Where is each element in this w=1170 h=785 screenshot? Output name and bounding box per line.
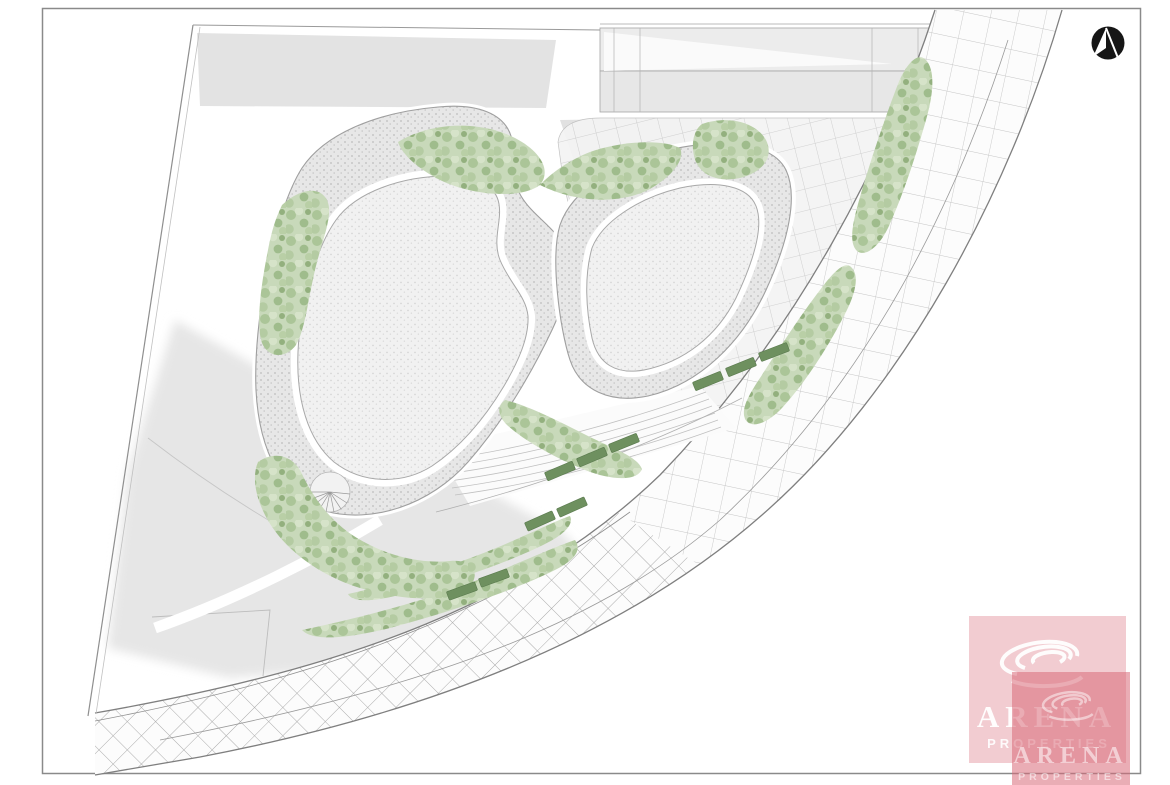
site-plan-drawing: ARENA PROPERTIES ARENA PROPERTIES [0, 0, 1170, 785]
watermark-small: ARENA PROPERTIES [1012, 672, 1130, 785]
watermark-brand-text-2: ARENA [1013, 743, 1128, 769]
neighbour-structures [600, 24, 935, 112]
top-shadow-strip [197, 33, 556, 108]
north-arrow-icon [1092, 27, 1125, 60]
site-plan-page: ARENA PROPERTIES ARENA PROPERTIES [0, 0, 1170, 785]
watermark-sub-text-2: PROPERTIES [1018, 771, 1126, 783]
